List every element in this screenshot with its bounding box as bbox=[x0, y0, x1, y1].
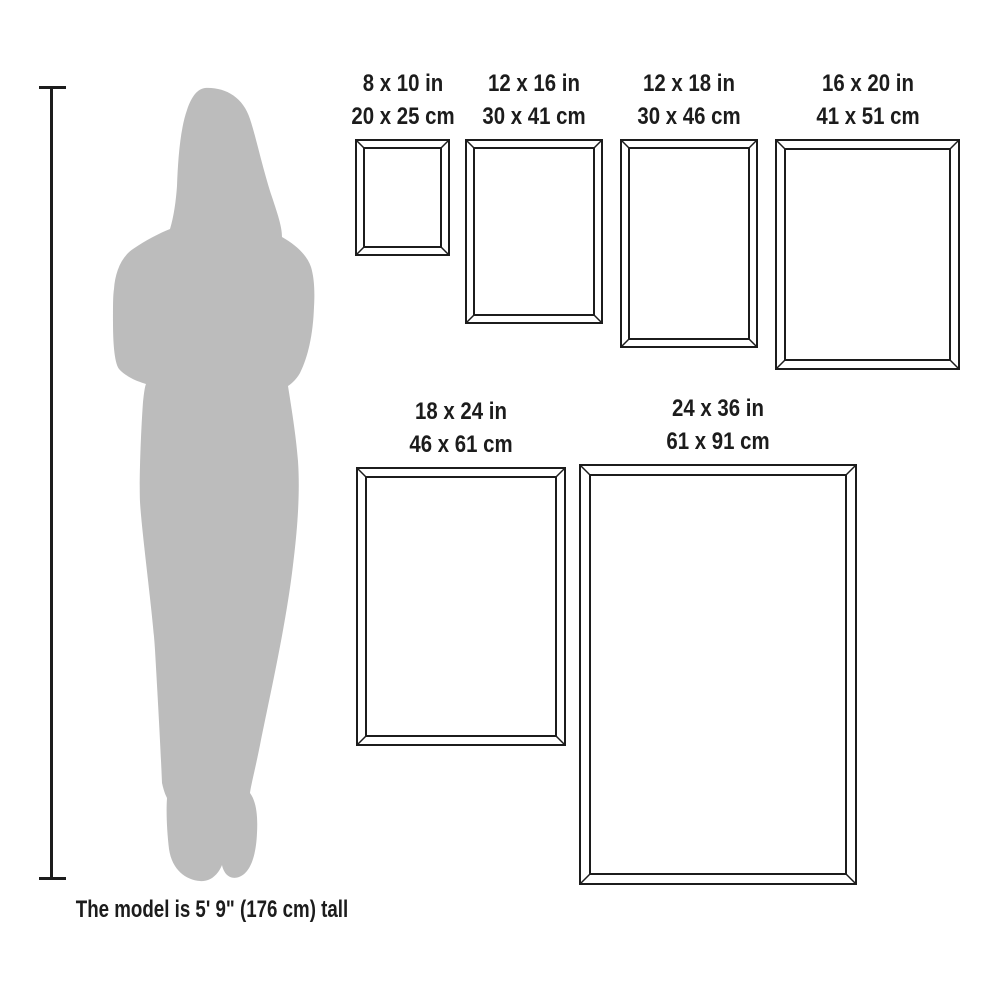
model-height-caption: The model is 5' 9" (176 cm) tall bbox=[47, 895, 378, 925]
frame-size-inches-label: 24 x 36 in bbox=[582, 392, 854, 425]
frame-graphic bbox=[620, 139, 758, 348]
frame-size-inches-label: 18 x 24 in bbox=[325, 395, 597, 428]
model-silhouette-shape bbox=[113, 88, 314, 881]
frame-size-cm-label: 61 x 91 cm bbox=[582, 425, 854, 458]
frame-size-guide-diagram: 8 x 10 in 20 x 25 cm 12 x 16 in 30 x 41 … bbox=[0, 0, 1000, 1000]
frame-size-inches-label: 16 x 20 in bbox=[732, 67, 1000, 100]
frame-size-cm-label: 41 x 51 cm bbox=[732, 100, 1000, 133]
frame-graphic bbox=[775, 139, 960, 370]
frame-graphic bbox=[355, 139, 450, 256]
frame-size-label: 24 x 36 in 61 x 91 cm bbox=[558, 392, 878, 458]
measure-line-bottom-cap bbox=[39, 877, 66, 880]
frame-size-cm-label: 46 x 61 cm bbox=[325, 428, 597, 461]
frame-graphic bbox=[579, 464, 857, 885]
frame-graphic bbox=[356, 467, 566, 746]
frame-graphic bbox=[465, 139, 603, 324]
model-silhouette bbox=[100, 85, 330, 885]
height-measure-line bbox=[50, 87, 53, 879]
frame-size-label: 16 x 20 in 41 x 51 cm bbox=[708, 67, 1000, 133]
